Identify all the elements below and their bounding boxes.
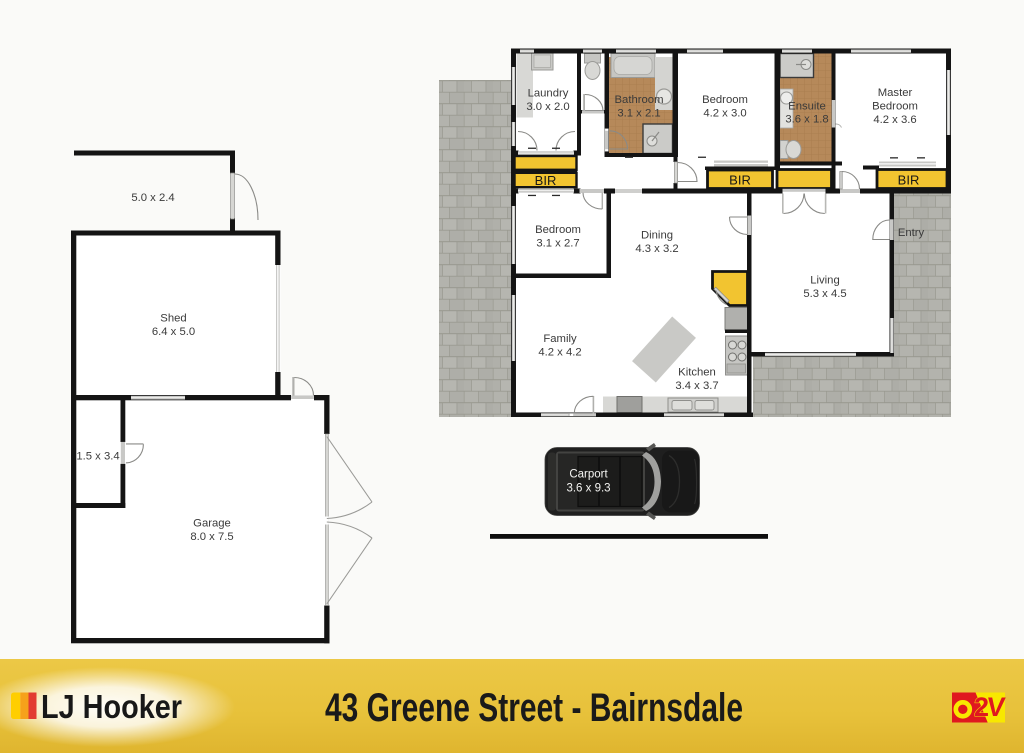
svg-text:5.0 x 2.4: 5.0 x 2.4: [131, 192, 174, 204]
svg-text:Shed: Shed: [160, 313, 186, 325]
svg-text:Laundry: Laundry: [528, 88, 569, 100]
svg-text:4.2 x 3.6: 4.2 x 3.6: [873, 114, 916, 126]
svg-text:3.6 x 9.3: 3.6 x 9.3: [566, 483, 610, 495]
svg-text:Master: Master: [878, 87, 913, 99]
svg-text:4.2 x 4.2: 4.2 x 4.2: [538, 347, 581, 359]
svg-text:4.3 x 3.2: 4.3 x 3.2: [635, 243, 678, 255]
svg-text:Dining: Dining: [641, 230, 673, 242]
svg-text:1.5 x 3.4: 1.5 x 3.4: [76, 451, 119, 463]
svg-text:Kitchen: Kitchen: [678, 367, 716, 379]
svg-text:BIR: BIR: [729, 173, 751, 188]
svg-text:3.0 x 2.0: 3.0 x 2.0: [526, 101, 569, 113]
svg-text:Bedroom: Bedroom: [702, 94, 748, 106]
svg-text:4.2 x 3.0: 4.2 x 3.0: [703, 108, 746, 120]
svg-text:3.1 x 2.7: 3.1 x 2.7: [536, 238, 579, 250]
svg-text:Family: Family: [543, 333, 577, 345]
svg-text:3.1 x 2.1: 3.1 x 2.1: [617, 108, 660, 120]
svg-text:Ensuite: Ensuite: [788, 101, 826, 113]
svg-text:BIR: BIR: [898, 173, 920, 188]
svg-text:Bedroom: Bedroom: [535, 224, 581, 236]
svg-text:Carport: Carport: [569, 469, 608, 481]
svg-text:3.4 x 3.7: 3.4 x 3.7: [675, 380, 718, 392]
svg-text:Bedroom: Bedroom: [872, 101, 918, 113]
svg-text:3.6 x 1.8: 3.6 x 1.8: [785, 114, 828, 126]
svg-text:LJ Hooker: LJ Hooker: [41, 688, 182, 725]
svg-text:6.4 x 5.0: 6.4 x 5.0: [152, 326, 195, 338]
svg-text:Living: Living: [810, 275, 840, 287]
svg-text:Garage: Garage: [193, 518, 231, 530]
svg-text:43 Greene Street - Bairnsdale: 43 Greene Street - Bairnsdale: [325, 686, 743, 730]
svg-text:Bathroom: Bathroom: [615, 94, 664, 106]
svg-text:8.0 x 7.5: 8.0 x 7.5: [190, 531, 233, 543]
svg-text:Entry: Entry: [898, 227, 925, 239]
svg-text:5.3 x 4.5: 5.3 x 4.5: [803, 288, 846, 300]
svg-text:V: V: [985, 691, 1006, 722]
svg-text:BIR: BIR: [535, 173, 557, 188]
